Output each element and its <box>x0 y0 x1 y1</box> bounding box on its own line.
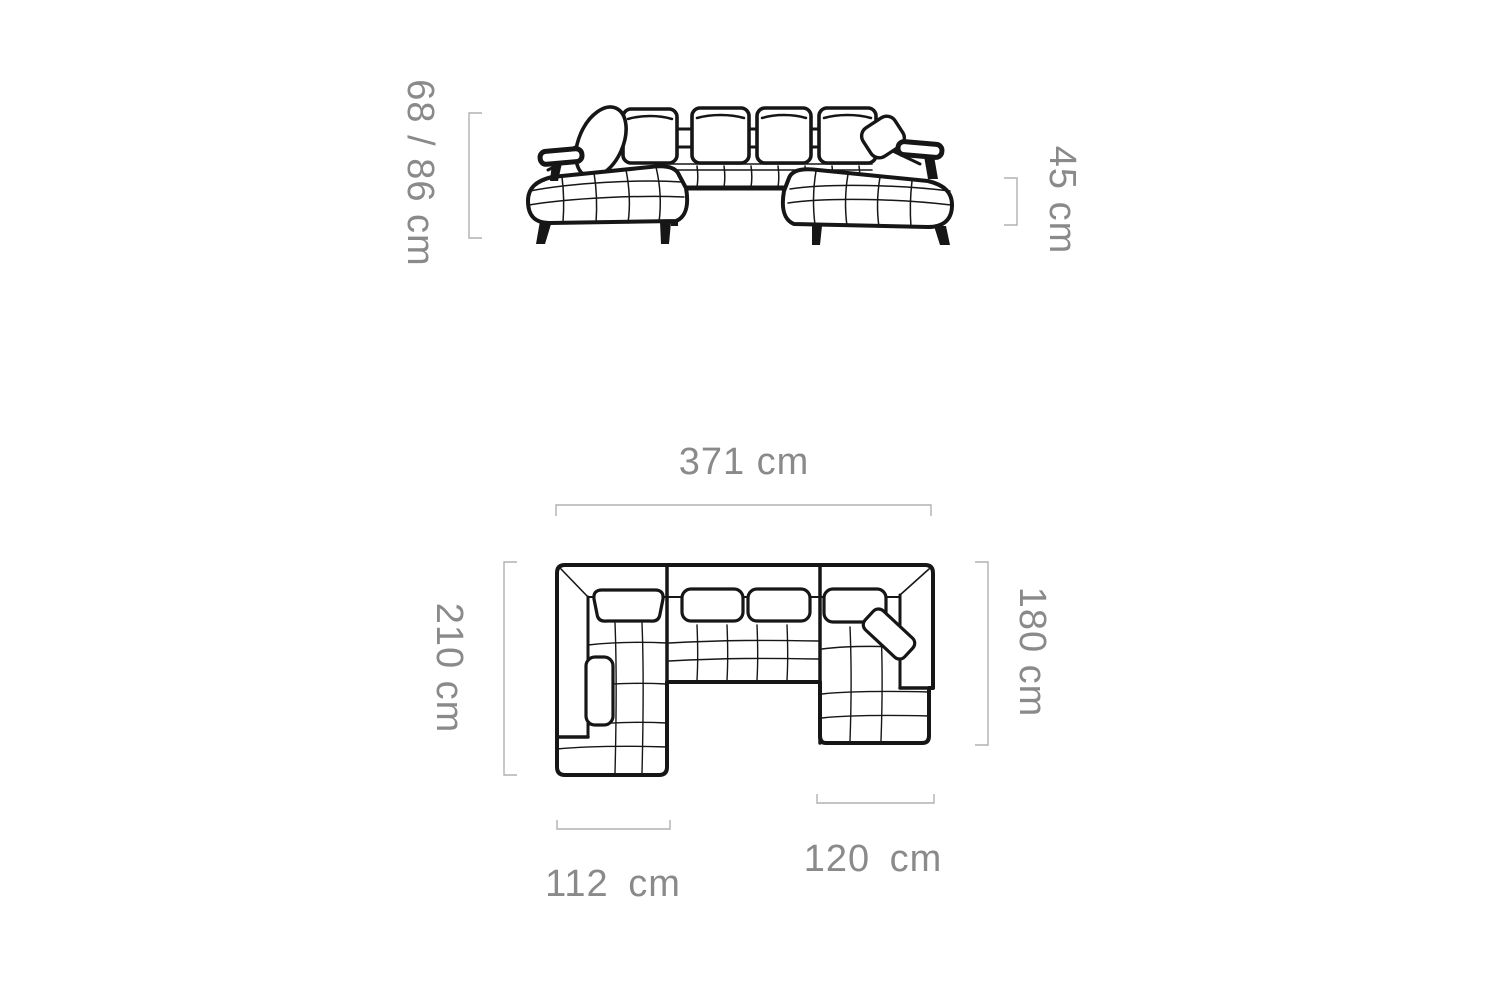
front-right-chaise <box>783 169 952 227</box>
dim-label-seat-height: 45 cm <box>1043 146 1081 254</box>
dim-label-left-chaise-width: 112 cm <box>545 865 681 903</box>
dim-bracket-seat-height <box>1003 177 1019 227</box>
plan-side-bolster <box>586 657 613 725</box>
top-plan-drawing <box>545 553 945 788</box>
dim-bracket-overall-height <box>468 112 484 240</box>
dim-bracket-right-chaise-width <box>816 793 936 805</box>
dim-bracket-left-chaise-width <box>556 819 672 831</box>
dim-label-right-depth: 180 cm <box>1013 587 1051 718</box>
dim-bracket-right-depth <box>974 561 990 747</box>
sofa-dimensions-diagram: 68 / 86 cm 45 cm 371 cm 210 cm 180 cm 11… <box>0 0 1500 1000</box>
dim-bracket-overall-width <box>555 504 933 517</box>
dim-bracket-left-depth <box>503 561 519 777</box>
front-elevation-drawing <box>500 93 970 253</box>
dim-label-overall-height: 68 / 86 cm <box>401 79 439 266</box>
dim-label-right-chaise-width: 120 cm <box>804 840 943 878</box>
plan-back-cushions <box>594 589 886 622</box>
front-back-pillows <box>623 108 876 163</box>
dim-label-left-depth: 210 cm <box>430 603 468 734</box>
dim-label-overall-width: 371 cm <box>679 443 810 481</box>
